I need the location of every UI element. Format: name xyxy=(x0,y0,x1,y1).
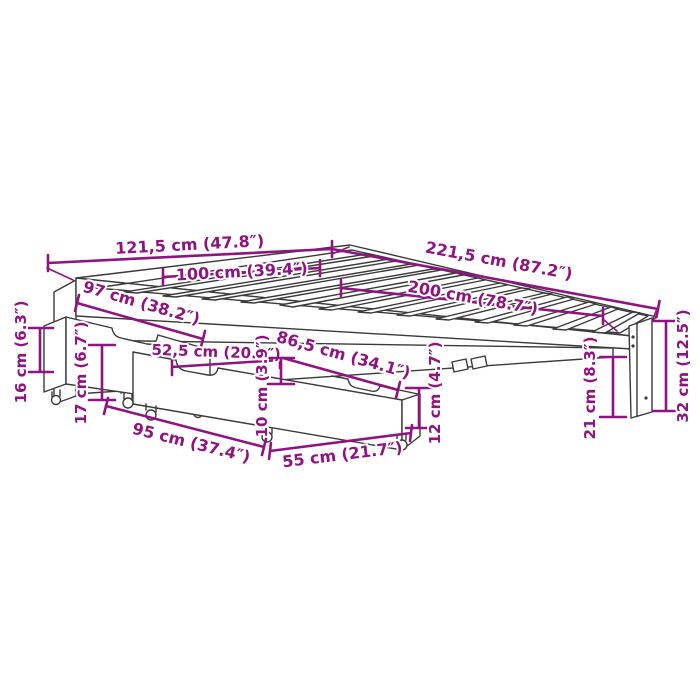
dim-label-overall-height: 32 cm (12.5″) xyxy=(674,309,692,422)
dim-label-side-drawer-height: 16 cm (6.3″) xyxy=(12,301,30,404)
diagram-canvas: 121,5 cm (47.8″) 221,5 cm (87.2″) 100 cm… xyxy=(0,0,700,700)
caster-icon xyxy=(123,398,133,408)
foot-leg-panel xyxy=(629,318,652,418)
dim-label-foot-clearance: 21 cm (8.3″) xyxy=(581,337,599,440)
dim-label-underside-clearance: 12 cm (4.7″) xyxy=(426,342,444,445)
bed-frame-dimension-diagram: 121,5 cm (47.8″) 221,5 cm (87.2″) 100 cm… xyxy=(0,0,700,700)
dim-overall-height: 32 cm (12.5″) xyxy=(653,309,692,422)
dim-label-side-rail-height: 17 cm (6.7″) xyxy=(72,322,90,425)
dim-label-drawer-bottom-length: 95 cm (37.4″) xyxy=(130,419,252,467)
dim-label-drawer-side-height: 10 cm (3.9″) xyxy=(253,335,271,438)
caster-icon xyxy=(52,396,61,405)
